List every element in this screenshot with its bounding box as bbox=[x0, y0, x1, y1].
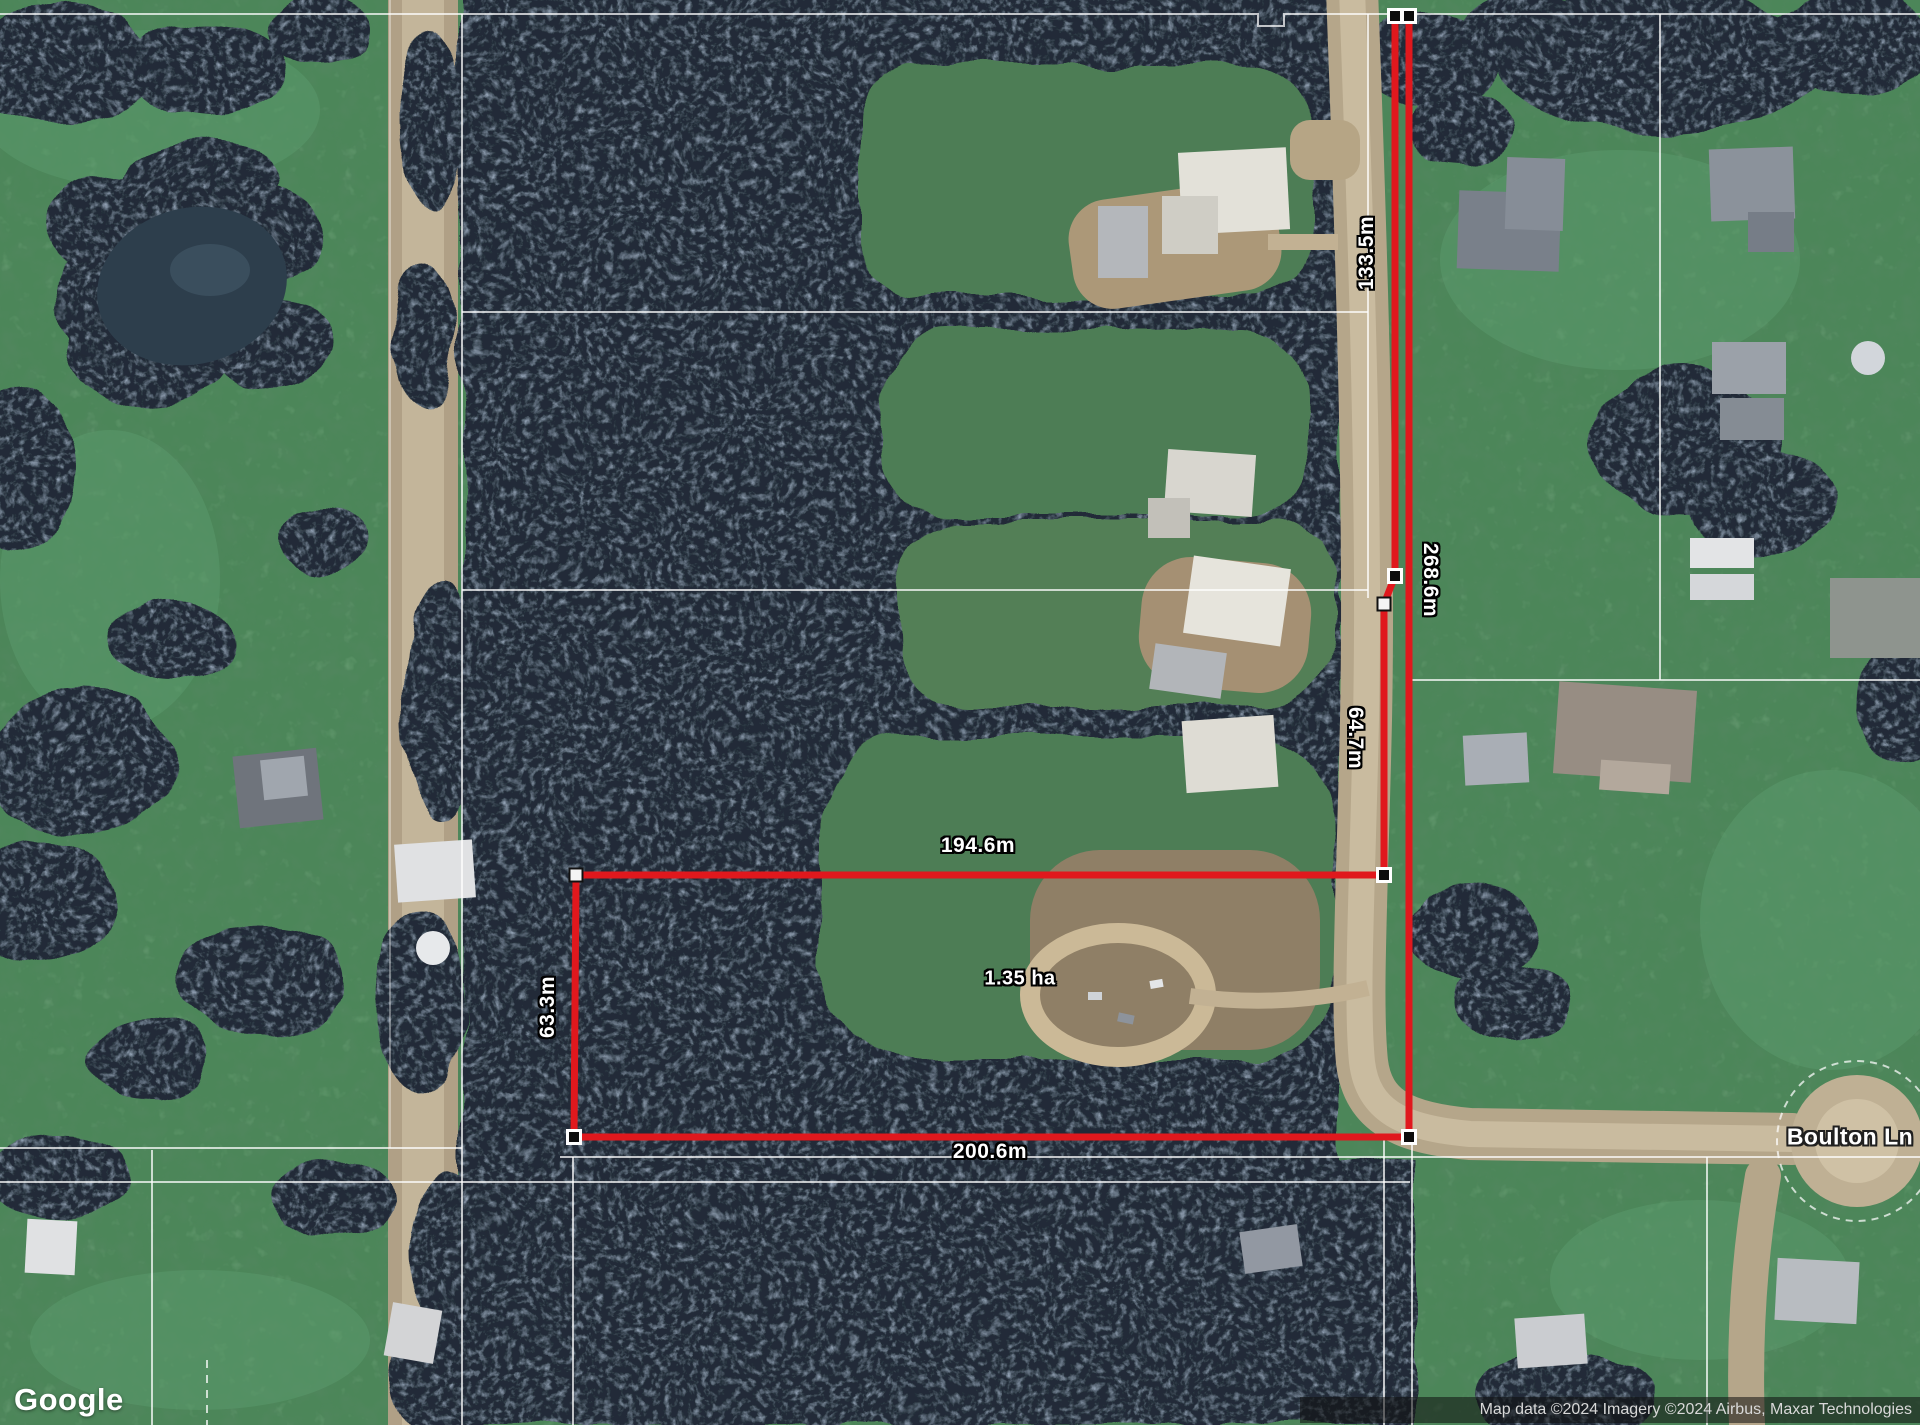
measurement-vertex[interactable] bbox=[1403, 10, 1416, 23]
road-label-boulton-ln: Boulton Ln bbox=[1787, 1124, 1913, 1151]
measurement-vertex[interactable] bbox=[1403, 1131, 1416, 1144]
measurement-vertex[interactable] bbox=[1389, 570, 1402, 583]
measurement-label-268-6m: 268.6m bbox=[1418, 543, 1442, 617]
measurement-label-133-5m: 133.5m bbox=[1355, 216, 1379, 290]
measurement-label-200-6m: 200.6m bbox=[953, 1140, 1027, 1164]
measurement-vertex[interactable] bbox=[1389, 10, 1402, 23]
google-logo[interactable]: Google bbox=[14, 1382, 124, 1418]
map-attribution: Map data ©2024 Imagery ©2024 Airbus, Max… bbox=[1300, 1397, 1920, 1423]
area-label: 1.35 ha bbox=[984, 968, 1055, 991]
measurement-vertex[interactable] bbox=[570, 869, 583, 882]
satellite-map-viewport[interactable]: 133.5m 268.6m 64.7m 194.6m 63.3m 200.6m … bbox=[0, 0, 1920, 1425]
measurement-vertex[interactable] bbox=[1378, 869, 1391, 882]
measurement-overlay bbox=[0, 0, 1920, 1425]
measurement-label-63-3m: 63.3m bbox=[536, 976, 560, 1038]
measurement-label-194-6m: 194.6m bbox=[941, 834, 1015, 858]
measurement-vertex[interactable] bbox=[1378, 598, 1391, 611]
measurement-label-64-7m: 64.7m bbox=[1343, 707, 1367, 769]
measurement-vertex[interactable] bbox=[568, 1131, 581, 1144]
